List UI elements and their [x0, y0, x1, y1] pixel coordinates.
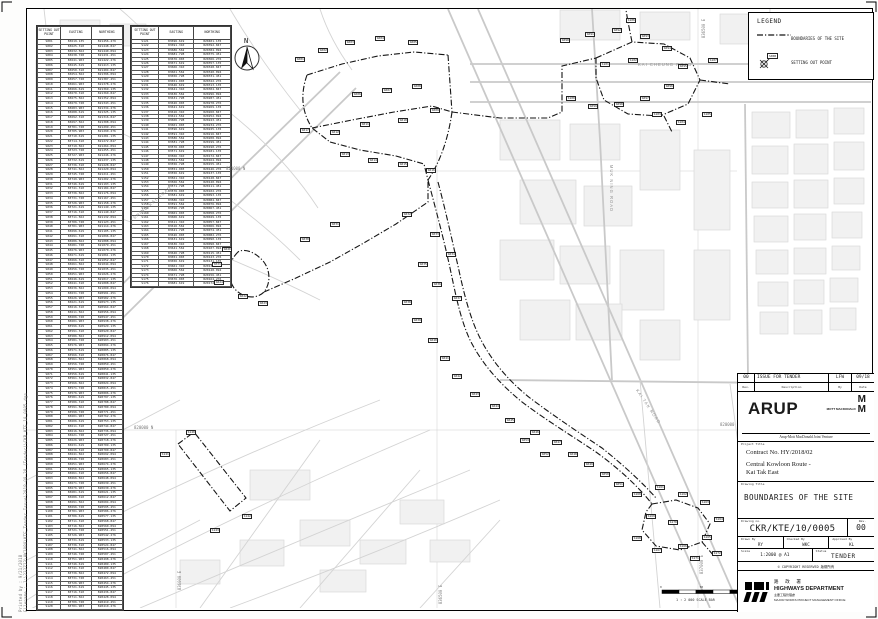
table-row: S08283611.310820744.847	[38, 424, 123, 429]
table-row: S01183666.619821369.135	[38, 87, 123, 92]
grid-coordinate-label: 821000 N	[226, 166, 245, 171]
table-row: S02783736.310821228.847	[38, 163, 123, 168]
col-easting: EASTING	[61, 27, 92, 40]
revision-entry: 00 ISSUE FOR TENDER LFW 09/18	[738, 374, 874, 382]
drawing-number-section: Drawing no. CKR/KTE/10/0005 Rev. 00	[738, 519, 874, 537]
legend-point-row: S000 SETTING OUT POINT	[757, 55, 873, 69]
table-row: S10683731.619820533.135	[38, 538, 123, 543]
table-row: S05883611.562820956.094	[38, 310, 123, 315]
table-row: S03683721.619821149.135	[38, 206, 123, 211]
table-row: S11883711.562820428.094	[38, 595, 123, 600]
table-row: S11283741.310820480.847	[38, 567, 123, 572]
setting-out-point-label: S053	[520, 438, 530, 443]
setting-out-point-label: S141	[160, 452, 170, 457]
table-row: S02883741.562821220.094	[38, 168, 123, 173]
table-cell: 820172.135	[194, 282, 231, 286]
department-name-en: HIGHWAYS DEPARTMENT	[774, 587, 846, 593]
col-setting-out-point: SETTING OUT POINT	[132, 27, 159, 40]
table-row: S12583676.903820366.276	[132, 57, 231, 61]
table-row: S03083749.903821202.276	[38, 177, 123, 182]
rev-header: Rev.	[738, 383, 755, 391]
by-header: By	[829, 383, 852, 391]
setting-out-point-label: S011	[360, 122, 370, 127]
table-row: S00183619.135821456.479	[38, 40, 123, 45]
setting-out-point-label: S106	[626, 18, 636, 23]
setting-out-point-label: S043	[470, 392, 480, 397]
table-row: S02983745.728821211.451	[38, 173, 123, 178]
setting-out-point-label: S102	[628, 58, 638, 63]
setting-out-point-label: S097	[640, 96, 650, 101]
table-row: S13783616.310820260.847	[132, 110, 231, 114]
setting-out-point-label: S022	[238, 294, 248, 299]
table-row: S16783636.310820098.847	[132, 242, 231, 246]
table-row: S15083551.903820146.276	[132, 167, 231, 171]
setting-out-point-label: S023	[258, 301, 268, 306]
table-row: S13583626.903820278.276	[132, 101, 231, 105]
highways-department-logo-icon	[745, 582, 769, 602]
setting-out-point-label: S052	[540, 452, 550, 457]
table-row: S05583626.903820982.276	[38, 296, 123, 301]
revision-date: 09/18	[852, 374, 874, 382]
table-row: S15683581.619820093.135	[132, 194, 231, 198]
table-row: S10583726.903820542.276	[38, 534, 123, 539]
setting-out-point-label: S048	[568, 452, 578, 457]
setting-out-point-label: S017	[300, 128, 310, 133]
table-row: S04083701.903821114.276	[38, 225, 123, 230]
table-row: S02683732.619821237.135	[38, 158, 123, 163]
table-row: S09383666.562820648.094	[38, 477, 123, 482]
table-row: S09883691.562820604.094	[38, 500, 123, 505]
grid-coordinate-label: 820000 N	[134, 425, 153, 430]
setting-out-point-label: S142	[242, 514, 252, 519]
table-row: S12083701.903820410.276	[38, 605, 123, 610]
table-row: S16383616.562820066.094	[132, 225, 231, 229]
table-row: S16183606.619820049.135	[132, 216, 231, 220]
table-row: S15183556.619820137.135	[132, 172, 231, 176]
col-easting: EASTING	[158, 27, 194, 40]
mott-name: MOTT MACDONALD	[827, 408, 856, 411]
setting-out-point-label: S012	[330, 130, 340, 135]
revision-number: 00	[738, 374, 755, 382]
table-row: S08783636.310820700.847	[38, 448, 123, 453]
status-value: TENDER	[813, 553, 874, 560]
setting-out-point-label: S092	[612, 28, 622, 33]
table-row: S11683721.619820445.135	[38, 586, 123, 591]
table-row: S13483631.728820287.451	[132, 97, 231, 101]
setting-out-point-symbol: S000	[757, 55, 791, 69]
table-row: S07783586.310820788.847	[38, 401, 123, 406]
table-row: S13383636.562820296.094	[132, 92, 231, 96]
setting-out-point-label: S095	[678, 64, 688, 69]
table-cell: 83681.619	[158, 282, 194, 286]
table-row: S01783692.310821316.847	[38, 116, 123, 121]
setting-out-point-label: S165	[702, 535, 712, 540]
table-row: S12183696.619820401.135	[132, 40, 231, 44]
setting-out-point-label: S016	[426, 168, 436, 173]
drawing-title: BOUNDARIES OF THE SITE	[738, 487, 874, 518]
setting-out-point-label: S044	[490, 404, 500, 409]
table-row: S16083601.903820058.276	[132, 211, 231, 215]
grid-coordinate-label: 836000 E	[177, 571, 182, 590]
table-row: S01883697.562821308.094	[38, 120, 123, 125]
table-row: S01283670.310821360.847	[38, 92, 123, 97]
setting-out-point-label: S107	[708, 58, 718, 63]
setting-out-point-label: S170	[668, 520, 678, 525]
table-row: S06283591.310820920.847	[38, 329, 123, 334]
table-row: S08883641.562820692.094	[38, 453, 123, 458]
setting-out-point-label: S098	[614, 102, 624, 107]
table-row: S11083751.903820498.276	[38, 557, 123, 562]
scale-tick: 50	[700, 585, 704, 589]
table-row: S01983701.728821299.451	[38, 125, 123, 130]
table-cell: 83701.903	[61, 605, 92, 610]
setting-out-point-label: S140	[186, 430, 196, 435]
table-row: S11783716.310820436.847	[38, 591, 123, 596]
table-row: S15483571.728820111.451	[132, 185, 231, 189]
table-row: S05183646.619821017.135	[38, 277, 123, 282]
col-northing: NORTHING	[91, 27, 122, 40]
setting-out-table-left: SETTING OUT POINT EASTING NORTHING S0018…	[36, 25, 124, 611]
table-row: S17383666.562820148.094	[132, 269, 231, 273]
table-row: S12783666.310820348.847	[132, 66, 231, 70]
setting-out-point-label: S031	[330, 222, 340, 227]
table-row: S06483581.728820903.451	[38, 339, 123, 344]
table-row: S01483679.728821343.451	[38, 101, 123, 106]
copyright-line: © COPYRIGHT RESERVED 版權所有	[738, 562, 874, 571]
table-row: S14183596.619820225.135	[132, 128, 231, 132]
table-row: S01583683.903821334.276	[38, 106, 123, 111]
grid-coordinate-label: 836500 E	[438, 585, 443, 604]
table-row: S00283625.310821448.847	[38, 44, 123, 49]
setting-out-point-label: S104	[676, 120, 686, 125]
table-row: S04883661.562821044.094	[38, 263, 123, 268]
table-cell: 820410.276	[91, 605, 122, 610]
table-row: S13983606.728820243.451	[132, 119, 231, 123]
table-cell: S120	[38, 605, 61, 610]
legend-boundary-row: BOUNDARIES OF THE SITE	[757, 31, 873, 45]
table-row: S00983657.728821387.451	[38, 78, 123, 83]
table-row: S02083705.903821290.276	[38, 130, 123, 135]
setting-out-point-label: S161	[655, 485, 665, 490]
contract-number: Contract No. HY/2018/02	[746, 449, 874, 457]
table-row: S14583576.903820190.276	[132, 145, 231, 149]
table-row: S10083701.903820586.276	[38, 510, 123, 515]
setting-out-point-label: S160	[632, 492, 642, 497]
table-row: S08383616.562820736.094	[38, 429, 123, 434]
table-row: S09983696.728820595.451	[38, 505, 123, 510]
setting-out-point-label: S008	[412, 84, 422, 89]
date-header: Date	[852, 383, 874, 391]
setting-out-point-label: S166	[678, 544, 688, 549]
table-row: S12683671.619820357.135	[132, 62, 231, 66]
setting-out-point-label: S105	[702, 112, 712, 117]
setting-out-point-label: S039	[412, 318, 422, 323]
road-name-label: MUK NING ROAD	[609, 165, 614, 212]
table-row: S08083601.903820762.276	[38, 415, 123, 420]
table-row: S12283691.310820392.847	[132, 44, 231, 48]
table-cell: S176	[132, 282, 159, 286]
table-row: S14883561.562820164.094	[132, 158, 231, 162]
drawing-title-section: Drawing Title BOUNDARIES OF THE SITE	[738, 482, 874, 518]
setting-out-point-label: S164	[714, 517, 724, 522]
table-row: S12483681.728820375.451	[132, 53, 231, 57]
setting-out-point-label: S051	[614, 482, 624, 487]
table-row: S05783616.310820964.847	[38, 306, 123, 311]
table-row: S14383586.562820208.094	[132, 136, 231, 140]
table-row: S10983746.728820507.451	[38, 553, 123, 558]
table-row: S04583676.903821070.276	[38, 249, 123, 254]
setting-out-point-label: S032	[402, 212, 412, 217]
table-row: S05083651.903821026.276	[38, 272, 123, 277]
highways-department-section: 路 政 署 HIGHWAYS DEPARTMENT 主要工程管理處 MAJOR …	[738, 571, 874, 612]
setting-out-point-label: S047	[552, 440, 562, 445]
table-row: S03483731.728821167.451	[38, 196, 123, 201]
table-row: S14283591.310820216.847	[132, 132, 231, 136]
setting-out-point-label: S103	[652, 112, 662, 117]
table-row: S00483638.728821431.451	[38, 54, 123, 59]
description-header: Description	[755, 383, 829, 391]
revision-headers: Rev. Description By Date	[738, 382, 874, 391]
office-name-cn: 主要工程管理處	[774, 594, 846, 597]
table-row: S10483721.728820551.451	[38, 529, 123, 534]
setting-out-point-label: S143	[210, 528, 220, 533]
table-row: S03983706.728821123.451	[38, 220, 123, 225]
consultant-logos-section: ARUP M MOTT MACDONALD M Arup-Mott MacDon…	[738, 392, 874, 442]
table-row: S07483571.728820815.451	[38, 386, 123, 391]
table-row: S11483731.728820463.451	[38, 576, 123, 581]
scale-status-section: Scale 1:2000 @ A1 Status TENDER	[738, 549, 874, 562]
revision-by: LFW	[829, 374, 852, 382]
table-row: S05483631.728820991.451	[38, 291, 123, 296]
table-row: S13183646.619820313.135	[132, 84, 231, 88]
setting-out-point-label: S091	[585, 32, 595, 37]
setting-out-point-label: S005	[408, 40, 418, 45]
table-row: S09783686.310820612.847	[38, 496, 123, 501]
table-row: S02283714.310821272.847	[38, 139, 123, 144]
setting-out-point-label: S171	[690, 556, 700, 561]
mott-macdonald-logo: M MOTT MACDONALD M	[827, 395, 866, 415]
table-row: S08983646.728820683.451	[38, 458, 123, 463]
project-title-section: Project Title Contract No. HY/2018/02 Ce…	[738, 442, 874, 482]
table-row: S04383686.562821088.094	[38, 239, 123, 244]
boundary-line-symbol	[757, 31, 791, 45]
table-row: S06183596.619820929.135	[38, 325, 123, 330]
table-row: S09583676.903820630.276	[38, 486, 123, 491]
drawn-by-value: RY	[738, 542, 783, 547]
table-row: S01383675.562821352.094	[38, 97, 123, 102]
setting-out-point-label: S009	[430, 108, 440, 113]
revision-description: ISSUE FOR TENDER	[755, 374, 829, 382]
table-row: S13283641.310820304.847	[132, 88, 231, 92]
table-row: S12883661.562820340.094	[132, 70, 231, 74]
table-row: S00583641.903821422.276	[38, 59, 123, 64]
setting-out-point-label: S101	[600, 62, 610, 67]
table-row: S07183556.619820841.135	[38, 372, 123, 377]
mott-m-icon: M	[858, 405, 866, 415]
table-row: S06083601.903820938.276	[38, 320, 123, 325]
table-row: S06683571.619820885.135	[38, 348, 123, 353]
legend-point-label: SETTING OUT POINT	[791, 60, 832, 65]
setting-out-point-label: S168	[632, 536, 642, 541]
table-row: S10883741.562820516.094	[38, 548, 123, 553]
setting-out-point-label: S001	[295, 57, 305, 62]
table-row: S06583576.903820894.276	[38, 344, 123, 349]
table-row: S06983556.728820859.451	[38, 363, 123, 368]
table-row: S16483621.728820074.451	[132, 229, 231, 233]
table-row: S09683681.619820621.135	[38, 491, 123, 496]
setting-out-point-label: S094	[662, 46, 672, 51]
table-row: S02183710.619821281.135	[38, 135, 123, 140]
approved-by-value: KL	[829, 542, 874, 547]
table-row: S09083651.903820674.276	[38, 462, 123, 467]
table-row: S04283691.310821096.847	[38, 234, 123, 239]
setting-out-point-label: S049	[584, 462, 594, 467]
table-row: S13883611.562820252.094	[132, 114, 231, 118]
table-row: S11383736.562820472.094	[38, 572, 123, 577]
table-row: S11183746.619820489.135	[38, 562, 123, 567]
table-row: S17083651.903820123.276	[132, 255, 231, 259]
table-row: S00883654.562821396.094	[38, 73, 123, 78]
table-row: S01083661.903821378.276	[38, 82, 123, 87]
table-row: S04783666.310821052.847	[38, 258, 123, 263]
table-row: S08183606.619820753.135	[38, 420, 123, 425]
table-row: S04983656.728821035.451	[38, 268, 123, 273]
setting-out-point-label: S099	[588, 104, 598, 109]
setting-out-point-label: S041	[440, 356, 450, 361]
setting-out-point-label: S015	[398, 162, 408, 167]
setting-out-point-label: S030	[300, 237, 310, 242]
project-name-line1: Central Kowloon Route -	[746, 461, 874, 469]
joint-venture-label: Arup-Mott MacDonald Joint Venture	[742, 433, 870, 441]
table-row: S06883561.562820868.094	[38, 358, 123, 363]
setting-out-point-label: S163	[700, 500, 710, 505]
table-row: S11583726.903820454.276	[38, 581, 123, 586]
table-row: S10183706.619820577.135	[38, 515, 123, 520]
setting-out-table-right: SETTING OUT POINT EASTING NORTHING S1218…	[130, 25, 232, 288]
setting-out-point-label: S045	[505, 418, 515, 423]
table-row: S03583726.903821158.276	[38, 201, 123, 206]
table-row: S16683631.619820090.135	[132, 238, 231, 242]
table-row: S07583576.903820806.276	[38, 391, 123, 396]
table-row: S12383686.562820384.094	[132, 48, 231, 52]
scale-value: 1:2000 @ A1	[738, 553, 812, 558]
table-row: S02483723.728821255.451	[38, 149, 123, 154]
setting-out-point-label: S007	[382, 88, 392, 93]
scale-tick: 0	[660, 585, 662, 589]
table-row: S13683621.619820269.135	[132, 106, 231, 110]
table-row: S15583576.903820102.276	[132, 189, 231, 193]
setting-out-point-label: S167	[652, 548, 662, 553]
table-row: S16983646.728820115.451	[132, 251, 231, 255]
table-row: S02383719.562821264.094	[38, 144, 123, 149]
table-row: S03883711.562821132.094	[38, 215, 123, 220]
table-row: S04483681.728821079.451	[38, 244, 123, 249]
office-name-en: MAJOR WORKS PROJECT MANAGEMENT OFFICE	[774, 599, 846, 602]
legend-boundary-label: BOUNDARIES OF THE SITE	[791, 36, 844, 41]
table-row: S07883591.562820780.094	[38, 405, 123, 410]
table-row: S09183656.619820665.135	[38, 467, 123, 472]
table-row: S05683621.619820973.135	[38, 301, 123, 306]
table-row: S15383566.562820120.094	[132, 181, 231, 185]
scale-bar-label: 1 : 2 000 SCALE BAR	[676, 598, 715, 602]
table-row: S14483581.728820199.451	[132, 141, 231, 145]
table-row: S03783716.310821140.847	[38, 211, 123, 216]
table-row: S06383586.562820912.094	[38, 334, 123, 339]
table-row: S08683631.619820709.135	[38, 443, 123, 448]
setting-out-point-label: S010	[398, 118, 408, 123]
table-row: S08583626.903820718.276	[38, 439, 123, 444]
table-row: S12983656.728820331.451	[132, 75, 231, 79]
table-row: S00783650.310821404.847	[38, 68, 123, 73]
table-row: S06783566.310820876.847	[38, 353, 123, 358]
setting-out-point-label: S038	[402, 300, 412, 305]
legend-title: LEGEND	[757, 18, 873, 25]
table-row: S09483671.728820639.451	[38, 481, 123, 486]
setting-out-point-label: S050	[600, 472, 610, 477]
table-row: S14983556.728820155.451	[132, 163, 231, 167]
setting-out-point-label: S162	[678, 492, 688, 497]
setting-out-point-label: S169	[646, 514, 656, 519]
setting-out-point-label: S003	[345, 40, 355, 45]
table-row: S00683645.619821413.135	[38, 63, 123, 68]
table-row: S14683571.619820181.135	[132, 150, 231, 154]
point-tag: S000	[767, 53, 778, 59]
setting-out-point-label: S013	[340, 152, 350, 157]
table-row: S09283661.310820656.847	[38, 472, 123, 477]
col-setting-out-point: SETTING OUT POINT	[38, 27, 61, 40]
setting-out-point-label: S020	[222, 247, 232, 252]
table-row: S07283561.310820832.847	[38, 377, 123, 382]
setting-out-point-label: S090	[560, 38, 570, 43]
arup-logo: ARUP	[748, 399, 798, 419]
table-row: S14783566.310820172.847	[132, 154, 231, 158]
setting-out-point-label: S024	[214, 280, 224, 285]
table-row: S14083601.903820234.276	[132, 123, 231, 127]
table-row: S07983596.728820771.451	[38, 410, 123, 415]
setting-out-point-label: S014	[368, 158, 378, 163]
table-row: S17483671.728820156.451	[132, 273, 231, 277]
table-row: S05383636.562821000.094	[38, 287, 123, 292]
setting-out-point-label: S036	[432, 282, 442, 287]
setting-out-point-label: S002	[318, 48, 328, 53]
drawing-sheet: { "tables": { "headers": ["SETTING OUT P…	[0, 0, 878, 619]
rev-value: 00	[848, 523, 874, 532]
setting-out-point-label: S037	[452, 296, 462, 301]
setting-out-point-label: S096	[664, 84, 674, 89]
table-row: S15283561.310820128.847	[132, 176, 231, 180]
road-name-label: KAI TAK ROAD	[635, 388, 662, 425]
project-name-line2: Kai Tak East	[746, 469, 874, 477]
checked-by-value: WKC	[784, 542, 829, 547]
table-row: S03383736.562821176.094	[38, 192, 123, 197]
setting-out-point-label: S034	[446, 252, 456, 257]
setting-out-point-label: S004	[375, 36, 385, 41]
setting-out-point-label: S100	[566, 96, 576, 101]
table-row: S15783586.310820084.847	[132, 198, 231, 202]
table-row: S05983606.728820947.451	[38, 315, 123, 320]
table-row: S05283641.310821008.847	[38, 282, 123, 287]
title-block: 00 ISSUE FOR TENDER LFW 09/18 Rev. Descr…	[737, 373, 874, 612]
setting-out-point-label: S035	[418, 262, 428, 267]
table-row: S02583727.903821246.276	[38, 154, 123, 159]
table-row: S10283711.310820568.847	[38, 519, 123, 524]
table-row: S10383716.562820560.094	[38, 524, 123, 529]
table-row: S07083551.903820850.276	[38, 367, 123, 372]
table-row: S08483621.728820727.451	[38, 434, 123, 439]
setting-out-point-label: S006	[352, 92, 362, 97]
table-row: S00383632.562821440.094	[38, 49, 123, 54]
table-row: S13083651.903820322.276	[132, 79, 231, 83]
